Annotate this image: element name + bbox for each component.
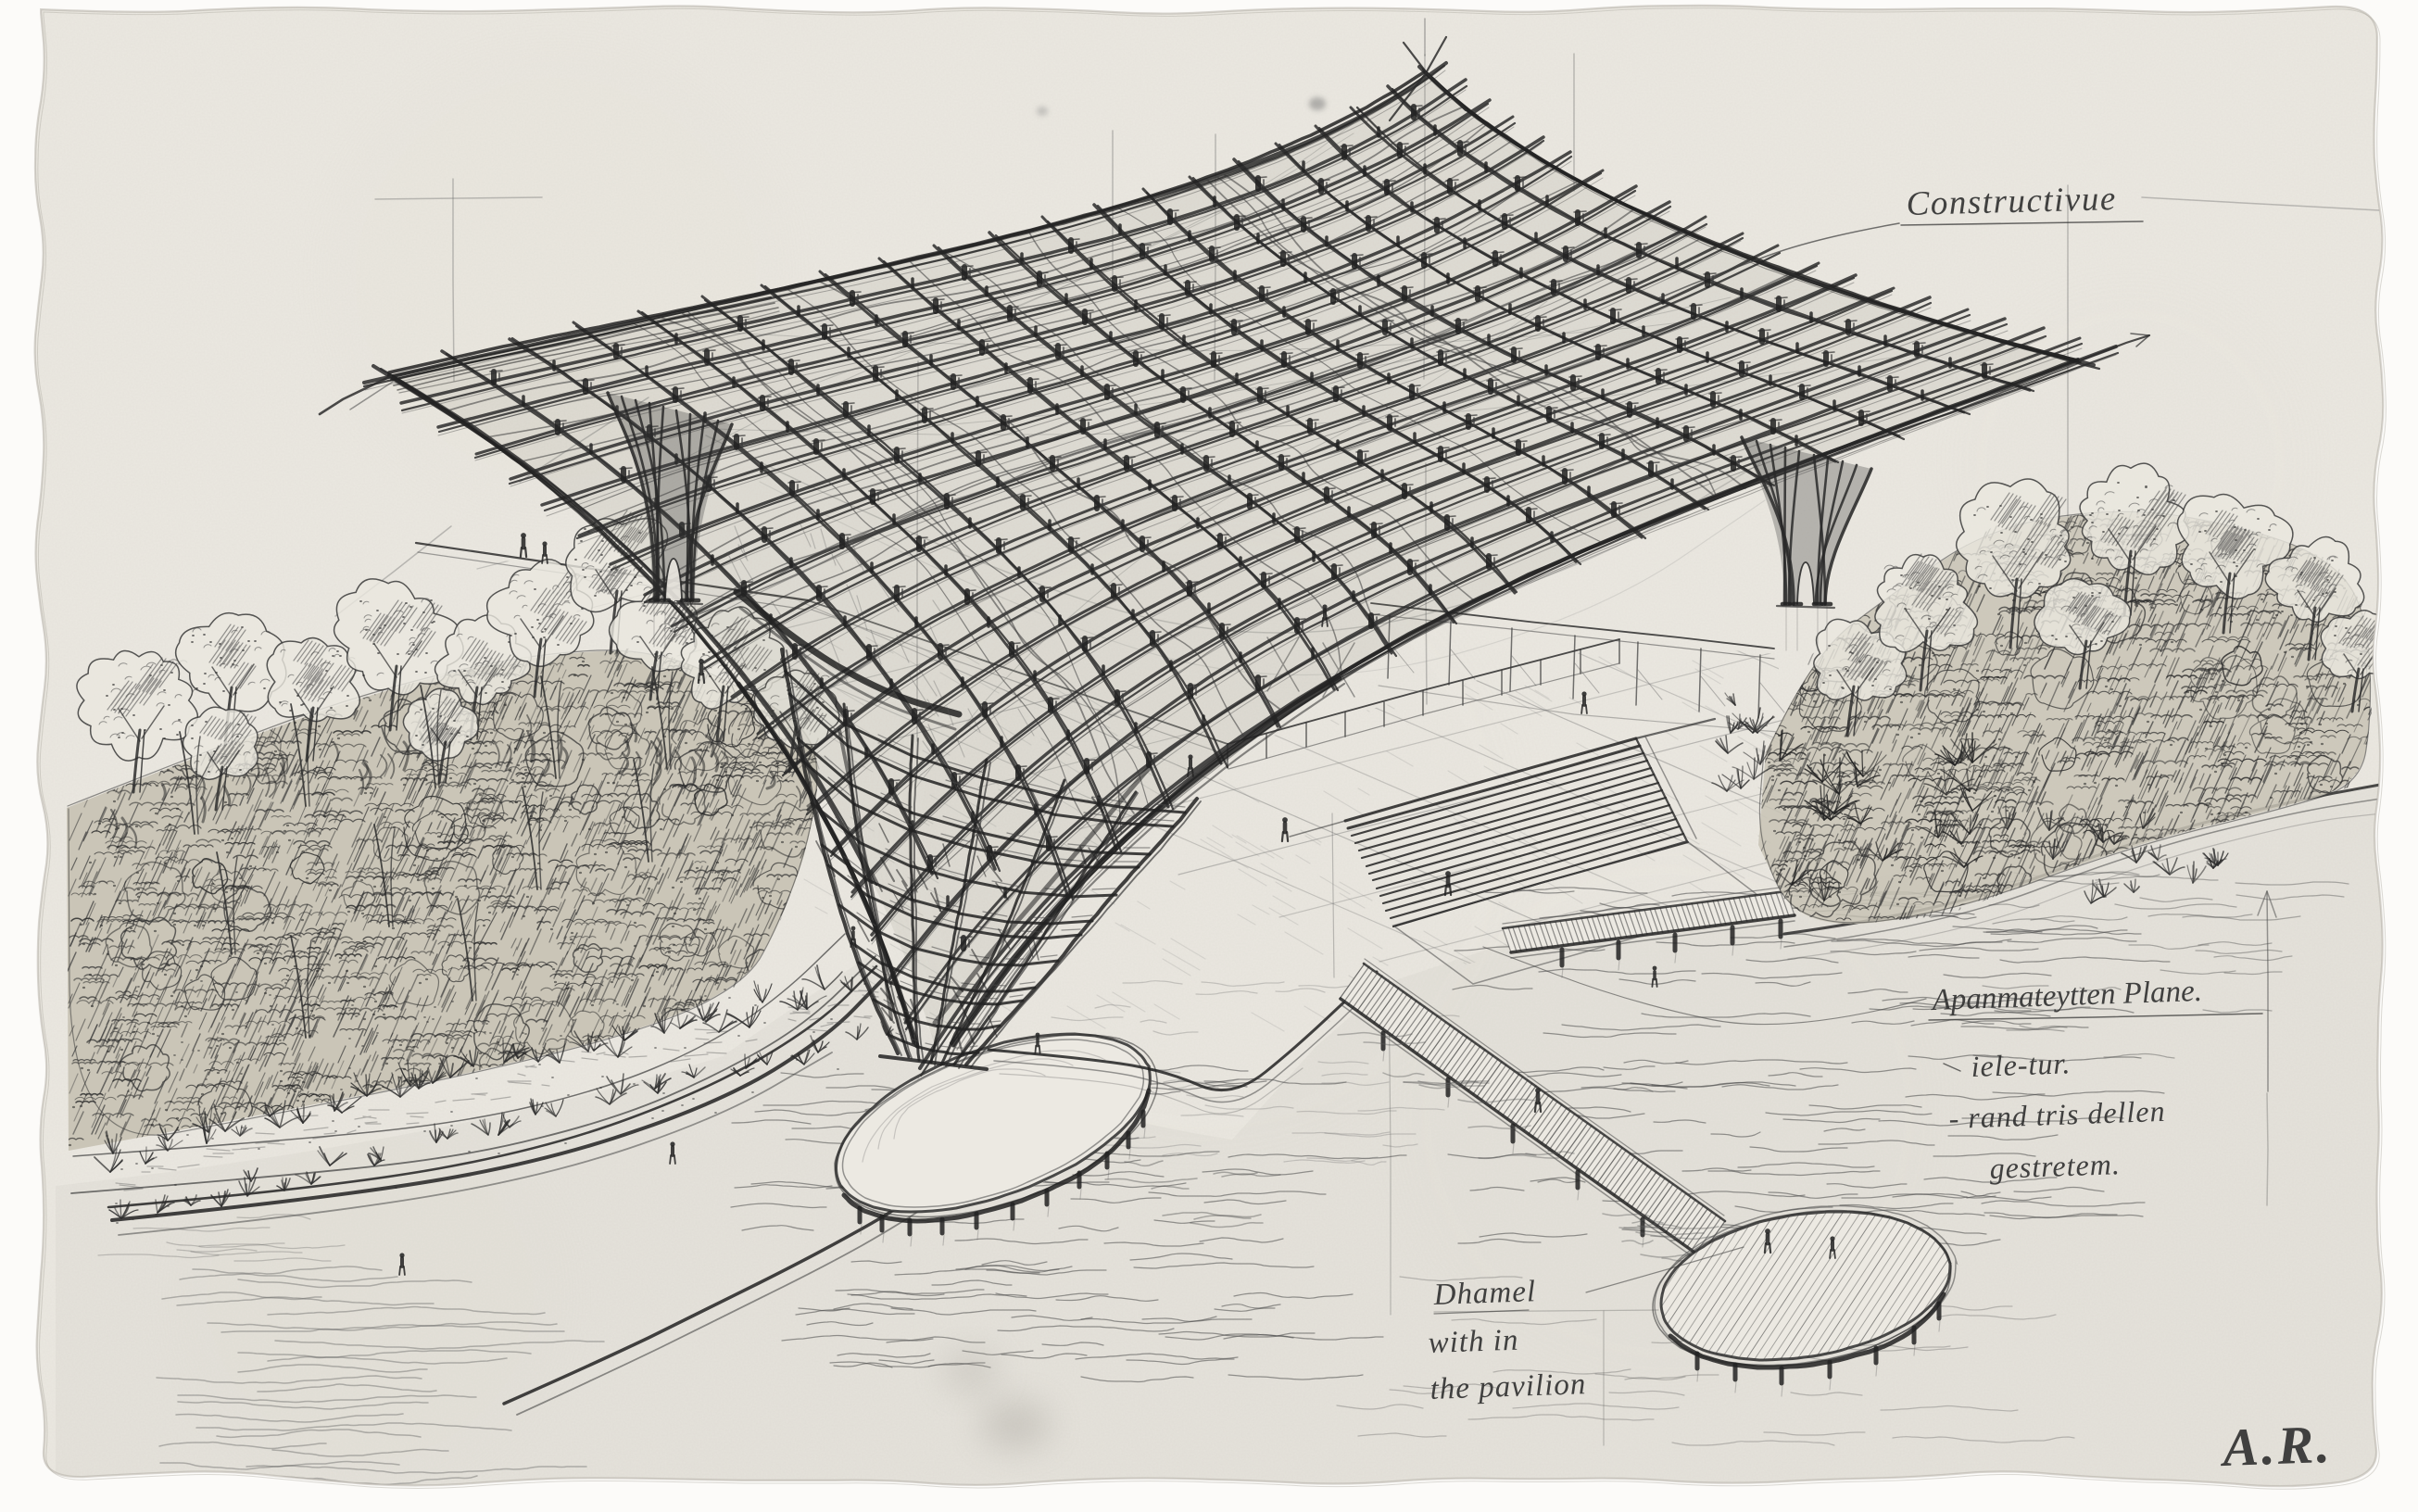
svg-text:A.R.: A.R.	[2219, 1414, 2334, 1478]
svg-text:Dhamel: Dhamel	[1432, 1275, 1537, 1312]
svg-text:with in: with in	[1428, 1324, 1519, 1360]
svg-text:the pavilion: the pavilion	[1429, 1367, 1587, 1406]
svg-text:Constructivue: Constructivue	[1906, 180, 2117, 223]
svg-text:gestretem.: gestretem.	[1989, 1147, 2121, 1185]
svg-text:iele-tur.: iele-tur.	[1971, 1046, 2072, 1083]
